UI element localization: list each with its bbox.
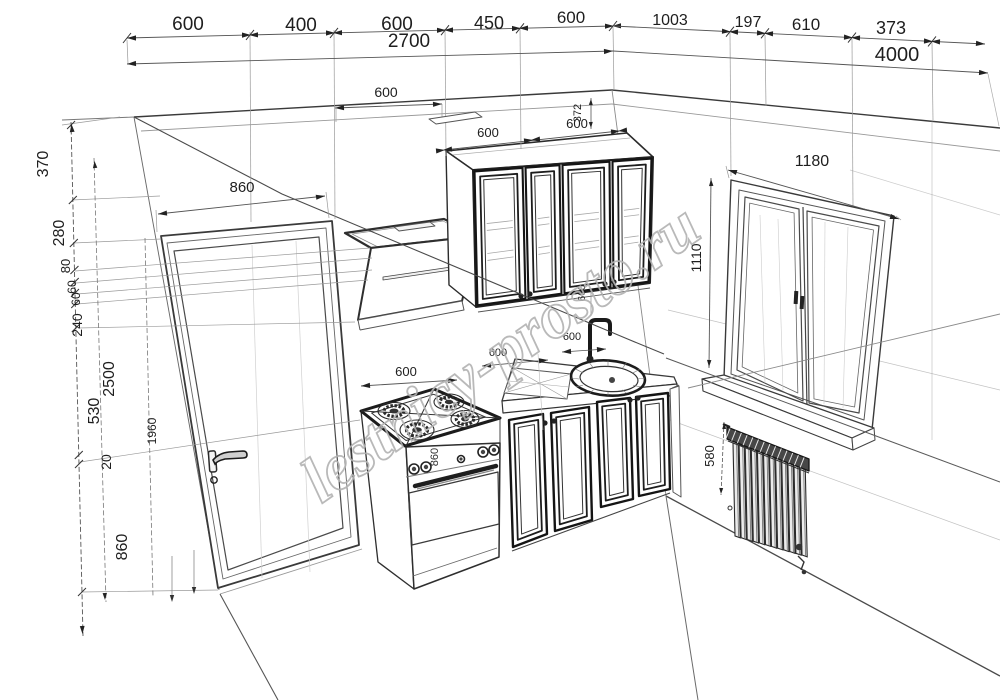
svg-text:1960: 1960	[145, 417, 159, 444]
svg-text:860: 860	[429, 448, 441, 466]
svg-text:370: 370	[35, 151, 52, 178]
svg-text:400: 400	[285, 15, 317, 36]
svg-text:610: 610	[792, 15, 820, 34]
svg-text:530: 530	[86, 398, 103, 425]
svg-text:1003: 1003	[652, 12, 688, 29]
svg-text:600: 600	[557, 8, 585, 27]
svg-text:450: 450	[474, 13, 504, 33]
svg-text:80: 80	[58, 259, 73, 273]
svg-text:280: 280	[51, 220, 68, 247]
svg-text:197: 197	[735, 14, 762, 31]
svg-text:2700: 2700	[388, 31, 430, 52]
svg-text:600: 600	[477, 125, 499, 140]
svg-text:60: 60	[69, 292, 83, 306]
svg-text:860: 860	[229, 179, 254, 196]
svg-text:600: 600	[172, 14, 204, 35]
svg-text:240: 240	[69, 313, 85, 337]
svg-text:2500: 2500	[101, 361, 118, 397]
svg-text:20: 20	[98, 454, 114, 470]
svg-text:4000: 4000	[875, 44, 920, 66]
svg-text:60: 60	[65, 280, 79, 294]
svg-text:373: 373	[876, 18, 906, 38]
svg-text:580: 580	[702, 445, 717, 467]
svg-text:860: 860	[114, 534, 131, 561]
svg-text:1180: 1180	[795, 153, 830, 170]
svg-text:372: 372	[572, 104, 584, 122]
svg-text:600: 600	[374, 84, 398, 100]
